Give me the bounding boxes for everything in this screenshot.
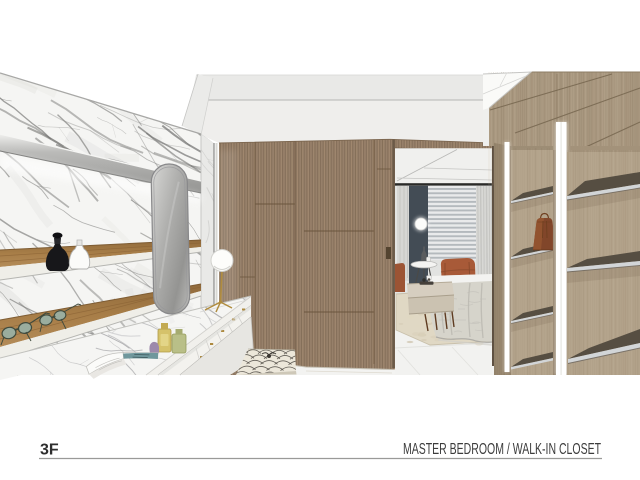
svg-text:MASTER BEDROOM / WALK-IN CLOSE: MASTER BEDROOM / WALK-IN CLOSET bbox=[403, 441, 601, 458]
svg-text:3F: 3F bbox=[40, 442, 59, 459]
